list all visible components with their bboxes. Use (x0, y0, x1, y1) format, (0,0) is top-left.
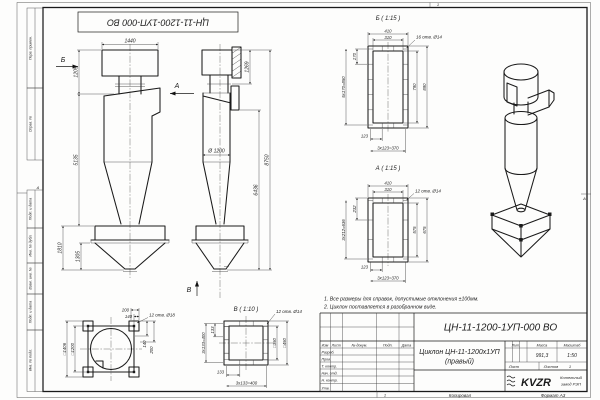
strip-label-sprav-n: Справ. № (29, 116, 33, 132)
format-label: Формат А3 (541, 393, 566, 398)
zone-top: 1 (437, 2, 439, 7)
notes: 1. Все размеры для справок, допустимые о… (323, 297, 479, 311)
front-view-dims: 1440 Б А 1205 5135 1810 1305 (56, 39, 194, 271)
zone-bottom: 1 (384, 393, 386, 398)
strip-label-inv-dubl: Инв. № дубл. (29, 234, 33, 256)
strip-label-podp-data-1: Подп. и дата (29, 198, 33, 221)
dim-front-h3: 1810 (58, 242, 64, 253)
dim-plan-r2: 200 (149, 346, 154, 355)
dim-b-pitchh-sum: 3x123=370 (377, 146, 399, 151)
drawing-sheet: 1 1 А А Перв. примен. Справ. № Подп. и д… (0, 0, 600, 400)
dim-a-hout: 675 (422, 226, 427, 234)
dim-v-pitchh: 133 (217, 370, 225, 375)
margin-strips: Перв. примен. Справ. № Подп. и дата Инв.… (27, 8, 43, 392)
titleblock-doc-number: ЦН-11-1200-1УП-000 ВО (444, 323, 558, 334)
mass-value: 991,3 (536, 353, 549, 359)
col-izm: Изм (322, 343, 329, 347)
doc-stamp: ЦН-11-1200-1УП-000 ВО (78, 12, 238, 32)
row-razrab: Разраб. (322, 350, 335, 354)
dim-a-pitchv-sum: 3x212=636 (341, 219, 346, 241)
org-line1: Котельный (560, 375, 583, 380)
title-block: ЦН-11-1200-1УП-000 ВО Циклон ЦН-11-1200х… (320, 313, 587, 392)
note-2: 2. Циклон поставляется в разобранном вид… (323, 305, 437, 311)
section-b-title: Б ( 1:15 ) (376, 16, 401, 22)
dim-a-wout: 410 (384, 181, 392, 186)
section-a-view: А ( 1:15 ) 12 отв. Ø14 410 310 575 675 2… (341, 166, 442, 283)
org-line2: завод РЭП (560, 382, 581, 387)
strip-label-podp-data-2: Подп. и дата (29, 301, 33, 324)
zone-left: А (36, 185, 40, 190)
sheet-label: Лист (508, 364, 520, 369)
section-b-holes-note: 16 отв. Ø14 (416, 35, 442, 40)
bottom-margin: Копировал Формат А3 (449, 393, 566, 398)
front-view (91, 44, 169, 278)
kvzr-logo: KVZR (507, 376, 551, 389)
view-arrow-a-label: А (174, 83, 180, 90)
row-tkontr: Т. контр. (322, 364, 338, 368)
dim-front-h1: 1205 (74, 66, 80, 77)
row-utv: Утв. (322, 386, 330, 390)
sheets-value: 1 (569, 364, 571, 369)
mass-label: Масса (537, 343, 548, 347)
view-arrow-v-label: В (187, 287, 192, 294)
section-b-view: Б ( 1:15 ) 16 отв. Ø14 410 310 790 890 1… (341, 16, 443, 153)
row-nkontr: Н. контр. (322, 379, 338, 383)
col-list: Лист (331, 343, 341, 347)
row-nachotd: Нач. отд. (322, 371, 338, 375)
dim-a-hin: 575 (412, 226, 417, 234)
section-a-holes-note: 12 отв. Ø14 (415, 189, 441, 194)
dim-front-h2: 5135 (74, 154, 80, 165)
dim-side-diameter: Ø 1200 (207, 149, 225, 155)
dim-v-pitchv: 133 (210, 326, 215, 334)
kvzr-logo-text: KVZR (521, 377, 551, 389)
dim-b-win: 310 (384, 35, 392, 40)
dim-b-pitchh: 123 (361, 134, 369, 139)
scale-value: 1:50 (567, 353, 577, 359)
sheets-label: Листов (543, 364, 559, 369)
zone-right: А (582, 196, 586, 201)
dim-b-pitchv-sum: 5x170=850 (341, 76, 346, 98)
plan-view: □1406 □1200 200 140 12 отв. Ø18 140 200 (62, 308, 176, 382)
isometric-view (491, 64, 555, 257)
dim-a-pitchh: 123 (361, 265, 369, 270)
dim-side-h2: 6436 (254, 184, 260, 195)
scale-label: Масштаб (564, 343, 582, 347)
section-v-title: В ( 1:10 ) (234, 307, 259, 313)
dim-v-sqout: □450 (282, 338, 287, 348)
note-1: 1. Все размеры для справок, допустимые о… (324, 297, 479, 303)
titleblock-name-line1: Циклон ЦН-11-1200х1УП (419, 349, 500, 356)
section-v-view: В ( 1:10 ) 12 отв. Ø14 133 3x133=400 □35… (201, 267, 303, 389)
dim-b-hin: 790 (412, 83, 417, 91)
dim-v-sqin: □350 (272, 338, 277, 348)
titleblock-name-line2: (правый) (445, 358, 474, 366)
drawing-canvas: 1 1 А А Перв. примен. Справ. № Подп. и д… (0, 0, 600, 400)
dim-plan-sqin: □1200 (70, 342, 75, 355)
lit-label: Лит. (511, 343, 520, 347)
dim-a-win: 310 (384, 187, 392, 192)
strip-label-vzam-inv: Взам. инв. № (29, 267, 33, 289)
dim-front-h4: 1305 (76, 251, 82, 262)
dim-front-width: 1440 (124, 39, 135, 45)
col-ndokum: № докум. (351, 343, 367, 347)
strip-label-inv-podl: Инв. № подл. (29, 349, 33, 371)
section-v-holes-note: 12 отв. Ø14 (276, 309, 302, 314)
dim-b-hout: 890 (422, 83, 427, 91)
dim-side-htotal: 8750 (265, 154, 271, 165)
dim-plan-r1: 140 (142, 340, 147, 348)
doc-stamp-text: ЦН-11-1200-1УП-000 ВО (107, 18, 209, 28)
copied-label: Копировал (449, 393, 472, 398)
view-arrow-b-label: Б (61, 57, 66, 64)
plan-holes-note: 12 отв. Ø18 (149, 313, 175, 318)
dim-side-h1: 1269 (245, 61, 251, 72)
col-data: Дата (401, 343, 411, 347)
side-view (192, 44, 248, 298)
dim-v-pitchv-sum: 3x133=400 (201, 332, 206, 354)
dim-a-pitchh-sum: 3x123=370 (377, 276, 399, 281)
dim-plan-t1: 200 (121, 308, 130, 313)
sheet-frame: 1 1 А А (17, 2, 591, 398)
dim-b-wout: 410 (384, 29, 392, 34)
dim-b-pitchv: 170 (352, 52, 357, 60)
dim-plan-sqout: □1406 (62, 342, 67, 355)
col-podp: Подп. (383, 343, 393, 347)
strip-label-perv-primen: Перв. примен. (29, 36, 33, 60)
dim-v-pitchh-sum: 3x133=400 (236, 381, 258, 386)
dim-plan-t2: 140 (125, 314, 133, 319)
section-a-title: А ( 1:15 ) (375, 166, 401, 172)
dim-a-pitchv: 232 (352, 205, 357, 214)
row-prov: Пров. (322, 357, 331, 361)
